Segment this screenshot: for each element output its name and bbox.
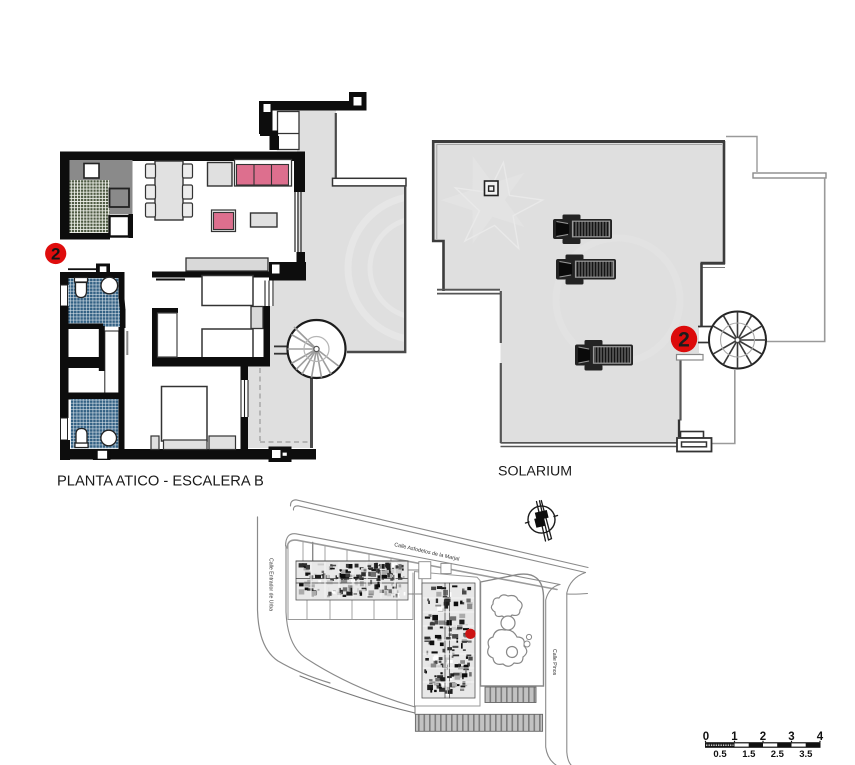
svg-text:2: 2 bbox=[678, 329, 690, 352]
svg-text:3.5: 3.5 bbox=[799, 749, 813, 760]
svg-text:2.5: 2.5 bbox=[771, 749, 785, 760]
svg-text:SOLARIUM: SOLARIUM bbox=[498, 464, 572, 480]
svg-text:2: 2 bbox=[51, 245, 60, 264]
svg-text:Calle Entrador de Urba: Calle Entrador de Urba bbox=[268, 558, 274, 611]
svg-text:PLANTA ATICO - ESCALERA B: PLANTA ATICO - ESCALERA B bbox=[57, 474, 264, 490]
svg-text:Calle Pinos: Calle Pinos bbox=[551, 649, 557, 676]
svg-text:0.5: 0.5 bbox=[713, 749, 727, 760]
svg-text:1.5: 1.5 bbox=[742, 749, 756, 760]
